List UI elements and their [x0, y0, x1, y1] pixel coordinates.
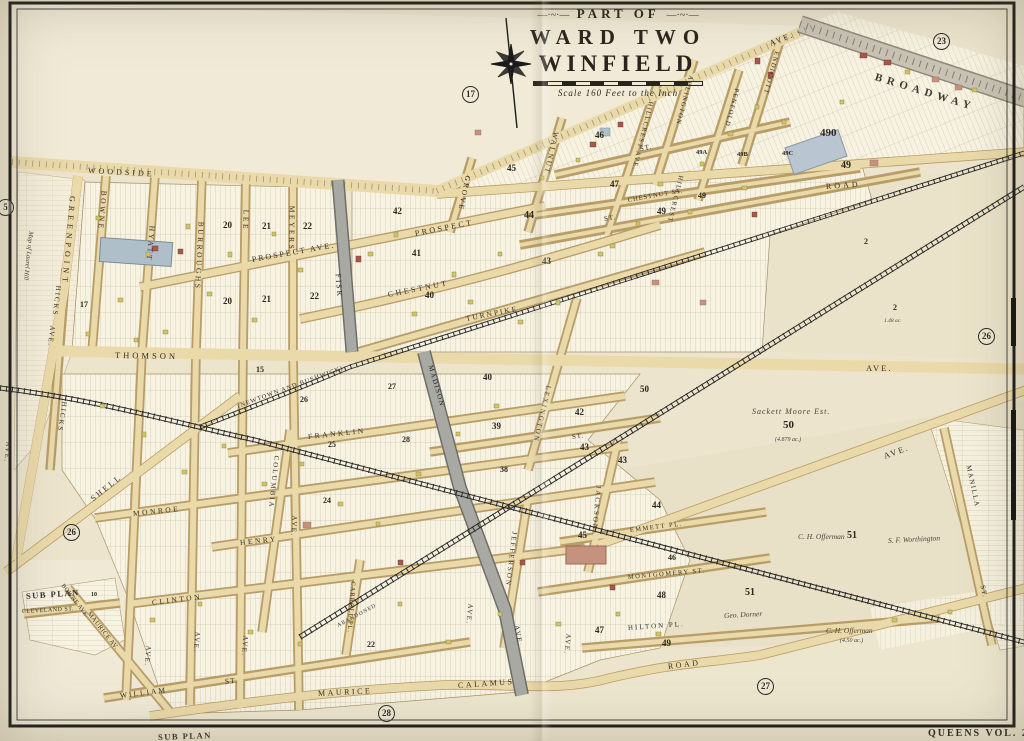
parcel-acreage: 1.48 ac. — [884, 319, 902, 325]
block-number: 46 — [595, 131, 604, 140]
block-number: 45 — [507, 164, 516, 173]
street-label-ave: AVE. — [562, 633, 571, 655]
street-label-ave: AVE. — [866, 364, 893, 373]
block-number: 40 — [425, 291, 434, 300]
street-label-st: ST. — [225, 676, 239, 685]
block-number: 43 — [542, 257, 551, 266]
plate-ref-circle: 17 — [462, 86, 479, 103]
plate-ref-circle: 27 — [757, 678, 774, 695]
block-number: 44 — [652, 501, 661, 510]
block-number: 49 — [841, 161, 851, 171]
block-number: 26 — [300, 396, 308, 404]
block-number: 43 — [618, 456, 627, 465]
plate-ref-circle: 23 — [933, 33, 950, 50]
block-number: 40 — [483, 373, 492, 382]
block-number: 39 — [492, 422, 501, 431]
block-number: 50 — [640, 385, 649, 394]
owner-name-offerman: C. H. Offerman — [826, 627, 873, 635]
block-number: 490 — [820, 128, 837, 139]
block-number: 22 — [310, 292, 319, 301]
block-number: 27 — [388, 383, 396, 391]
block-number: 22 — [303, 222, 312, 231]
plate-ref-circle: 28 — [378, 705, 395, 722]
title-name: WINFIELD — [478, 51, 758, 77]
street-label-thomson: THOMSON — [115, 351, 178, 361]
street-label-ave: AVE. — [46, 325, 56, 347]
street-label-ave: AVE. — [240, 635, 249, 657]
owner-name-dorner: Geo. Dorner — [724, 610, 763, 619]
block-number: 49B — [737, 152, 748, 159]
block-number: 41 — [412, 249, 421, 258]
block-number: 49 — [657, 207, 666, 216]
street-label-fisk: FISK — [334, 273, 343, 298]
street-label-ave: AVE. — [289, 515, 297, 537]
block-number: 42 — [575, 408, 584, 417]
street-label-st: ST. — [979, 585, 988, 599]
block-number: 21 — [262, 222, 271, 231]
block-number: 43 — [580, 443, 589, 452]
street-label-ave: AVE. — [2, 441, 11, 463]
block-number: 38 — [500, 466, 508, 474]
block-number: 2 — [864, 238, 868, 246]
title-ward: WARD TWO — [478, 25, 758, 50]
block-number: 49C — [782, 151, 793, 158]
estate-acreage: (4.879 ac.) — [775, 437, 801, 443]
block-number: 24 — [323, 497, 331, 505]
block-number: 48 — [657, 591, 666, 600]
ornament-left: —·~·— — [537, 10, 569, 21]
block-number: 50 — [783, 420, 794, 431]
owner-acreage: (4.50 ac.) — [840, 638, 863, 644]
plate-ref-circle: 26 — [63, 524, 80, 541]
volume-caption: QUEENS VOL. 2 — [928, 729, 1024, 739]
title-part-of: —·~·— PART OF —·~·— — [478, 6, 758, 22]
block-number: 46 — [668, 554, 676, 562]
block-number: 15 — [256, 366, 264, 374]
block-number: 51 — [745, 588, 755, 598]
block-number: 51 — [847, 531, 857, 541]
block-number: 47 — [595, 626, 604, 635]
scale-text: Scale 160 Feet to the Inch — [478, 88, 758, 98]
block-number: 45 — [578, 531, 587, 540]
street-label-lee: LEE — [242, 210, 250, 231]
block-number: 10 — [91, 592, 97, 598]
block-number: 49 — [662, 639, 671, 648]
street-label-ave: AVE. — [464, 603, 473, 625]
street-label-ave: AVE. — [192, 631, 201, 653]
title-block: —·~·— PART OF —·~·— WARD TWO WINFIELD Sc… — [478, 6, 758, 98]
block-number: 17 — [80, 301, 88, 309]
subplan-label-bottom: SUB PLAN — [158, 731, 212, 741]
street-label-ave: AVE. — [143, 645, 152, 667]
block-number: 49A — [696, 150, 707, 157]
ornament-right: —·~·— — [667, 10, 699, 21]
block-number: 44 — [524, 211, 534, 221]
atlas-sheet: —·~·— PART OF —·~·— WARD TWO WINFIELD Sc… — [0, 0, 1024, 741]
block-number: 47 — [610, 180, 619, 189]
block-number: 21 — [262, 295, 271, 304]
block-number: 20 — [223, 297, 232, 306]
block-number: 49 — [698, 192, 706, 200]
owner-name-offerman: C. H. Offerman — [798, 533, 845, 541]
block-number: 20 — [223, 221, 232, 230]
block-number: 22 — [367, 641, 375, 649]
street-label-meyers: MEYERS — [287, 206, 295, 252]
block-number: 28 — [402, 436, 410, 444]
graphic-scale-bar — [533, 81, 703, 86]
block-number: 25 — [328, 441, 336, 449]
estate-name-sackett-moore: Sackett Moore Est. — [752, 408, 830, 416]
block-number: 2 — [893, 304, 897, 312]
plate-ref-circle: 26 — [978, 328, 995, 345]
block-number: 42 — [393, 207, 402, 216]
